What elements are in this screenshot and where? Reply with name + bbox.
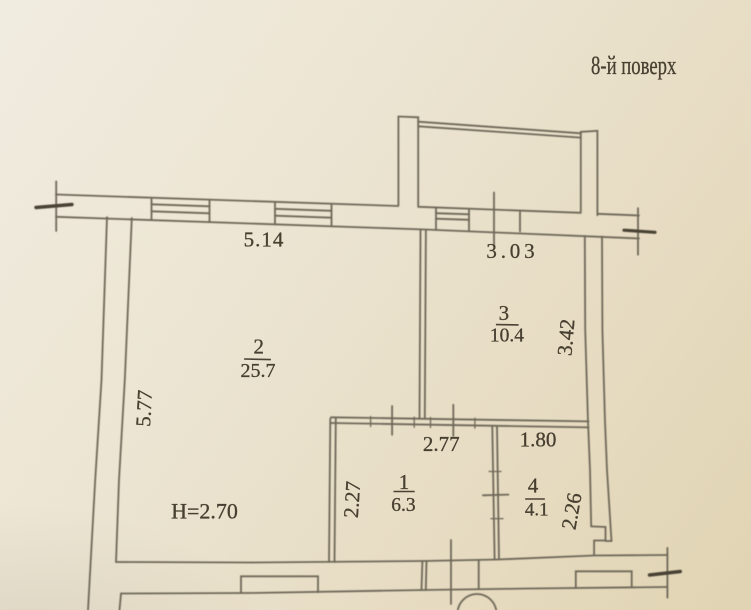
svg-text:Н=2.70: Н=2.70 — [171, 499, 238, 524]
svg-text:3.42: 3.42 — [552, 318, 579, 357]
svg-text:2.27: 2.27 — [339, 480, 366, 518]
svg-text:2.77: 2.77 — [423, 432, 460, 456]
svg-text:8-й поверх: 8-й поверх — [591, 51, 677, 80]
svg-text:3: 3 — [499, 301, 510, 325]
svg-text:2: 2 — [254, 335, 265, 359]
svg-text:10.4: 10.4 — [490, 325, 524, 346]
svg-text:6.3: 6.3 — [391, 495, 415, 516]
svg-text:1.80: 1.80 — [520, 428, 557, 452]
svg-text:1: 1 — [399, 470, 410, 494]
svg-text:25.7: 25.7 — [241, 360, 276, 382]
svg-text:5.14: 5.14 — [244, 228, 285, 252]
svg-text:4: 4 — [528, 473, 539, 497]
svg-text:5.77: 5.77 — [131, 389, 157, 427]
svg-text:4.1: 4.1 — [525, 499, 549, 520]
svg-text:3.03: 3.03 — [486, 239, 538, 263]
